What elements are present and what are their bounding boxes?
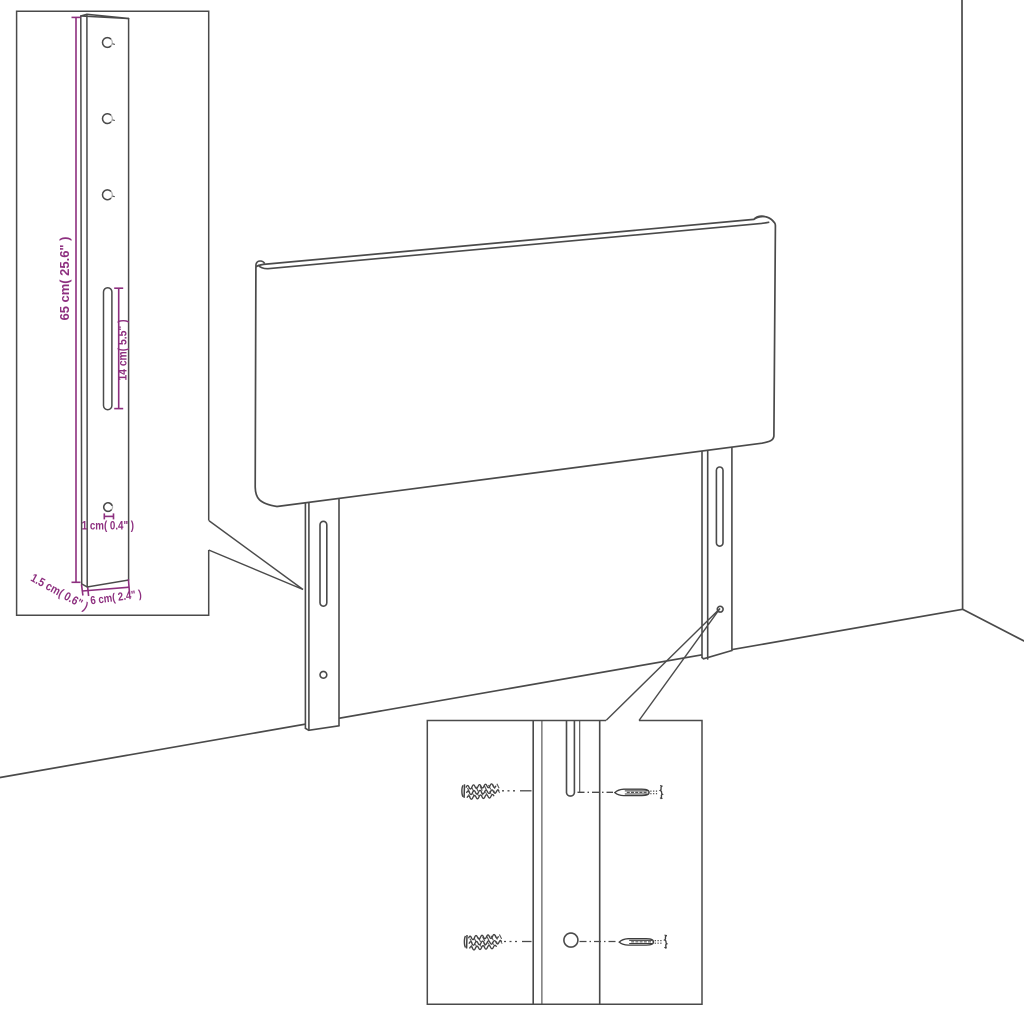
svg-text:65 cm( 25.6" ): 65 cm( 25.6" ) <box>57 237 72 321</box>
svg-text:1 cm( 0.4" ): 1 cm( 0.4" ) <box>82 521 134 533</box>
svg-text:14 cm( 5.5" ): 14 cm( 5.5" ) <box>116 320 130 381</box>
